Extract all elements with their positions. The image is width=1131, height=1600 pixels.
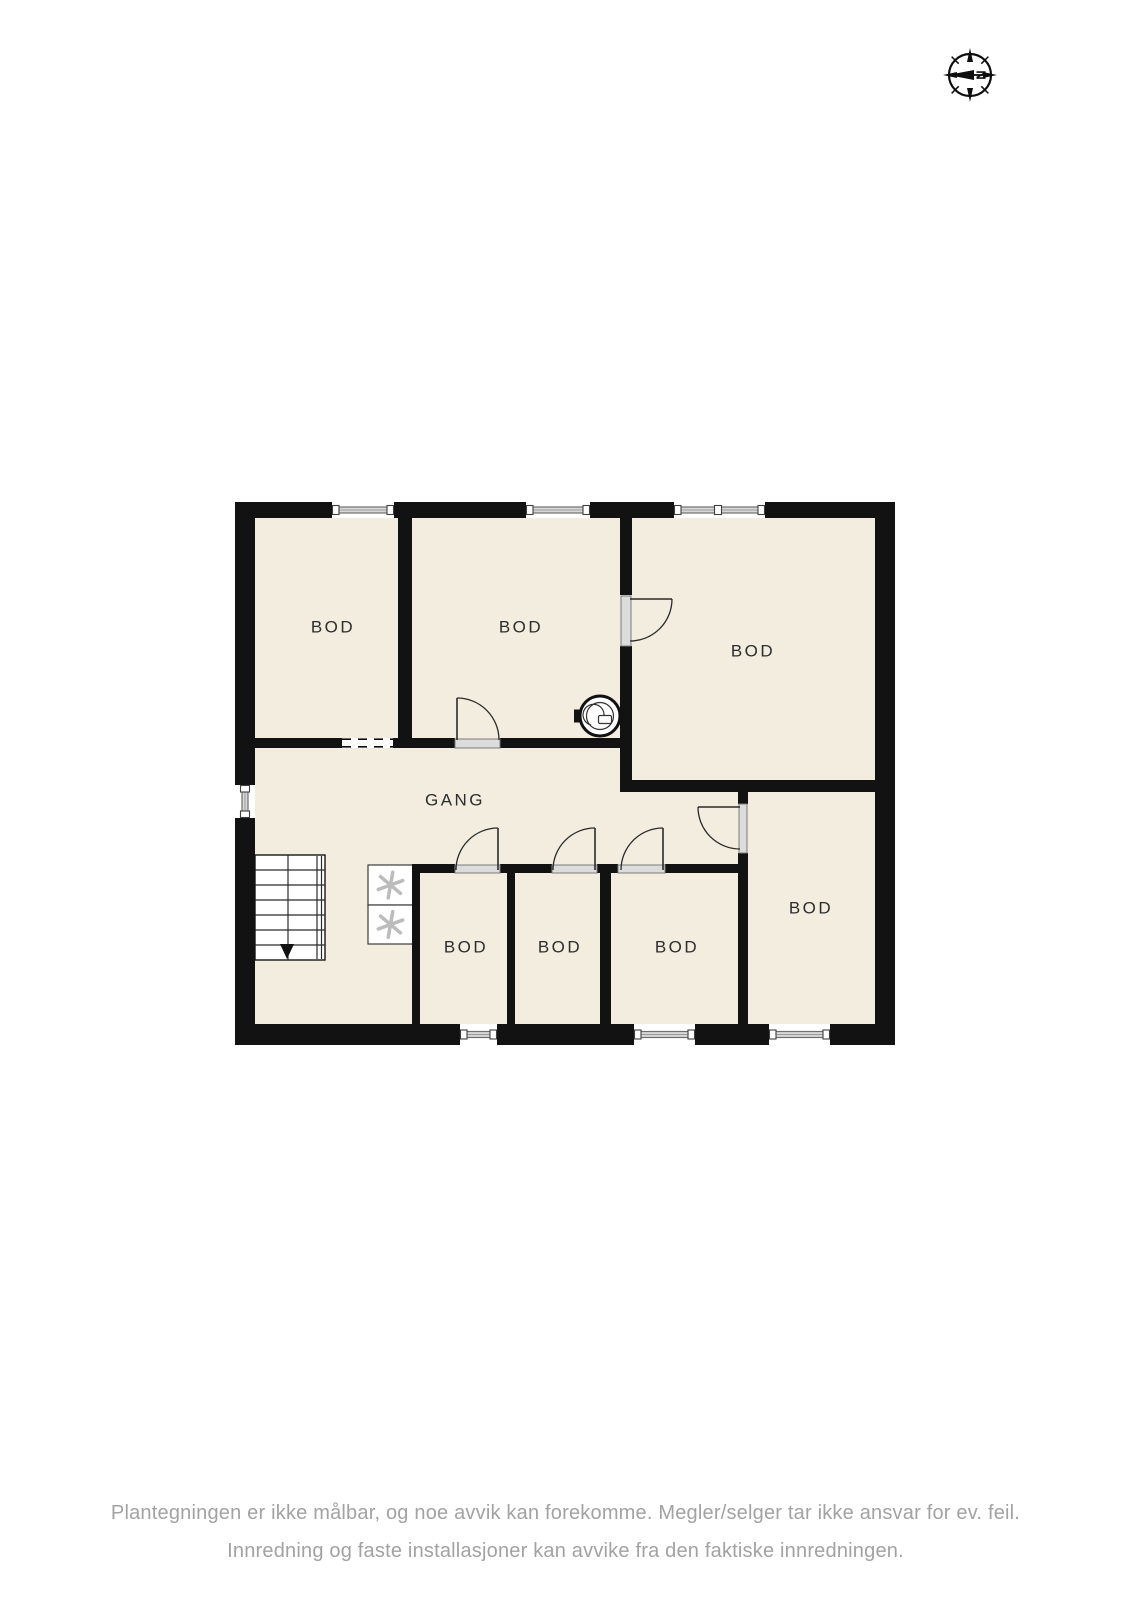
wall [830, 1024, 895, 1045]
wall [255, 738, 342, 748]
wall [398, 518, 412, 738]
wall [235, 502, 255, 785]
wall [500, 738, 620, 748]
wall [600, 873, 611, 1024]
wall [695, 1024, 769, 1045]
window [769, 1024, 830, 1045]
room-label: BOD [538, 938, 582, 957]
floor-plan: BODBODBODGANGBODBODBODBODN [0, 0, 1131, 1600]
room: BOD [538, 938, 582, 957]
compass-icon: N [943, 48, 997, 102]
freezer-icon [368, 905, 413, 944]
staircase [255, 855, 325, 960]
wall [738, 792, 748, 804]
room: BOD [731, 642, 775, 661]
compass-north-label: N [974, 70, 989, 79]
wall [597, 864, 618, 873]
disclaimer-line-1: Plantegningen er ikke målbar, og noe avv… [0, 1494, 1131, 1532]
dashed-opening [342, 738, 393, 748]
room: BOD [444, 938, 488, 957]
wall [497, 1024, 634, 1045]
disclaimer-line-2: Innredning og faste installasjoner kan a… [0, 1532, 1131, 1570]
wall [235, 1024, 460, 1045]
room: GANG [425, 791, 485, 810]
window [674, 502, 765, 518]
wall [875, 502, 895, 1045]
window [235, 785, 255, 818]
room: BOD [311, 618, 355, 637]
freezer-icon [368, 865, 413, 905]
wall [738, 853, 748, 1024]
room: BOD [789, 899, 833, 918]
wall [590, 502, 674, 518]
room-label: BOD [789, 899, 833, 918]
window [634, 1024, 695, 1045]
wall [500, 864, 552, 873]
wall [394, 502, 526, 518]
disclaimer: Plantegningen er ikke målbar, og noe avv… [0, 1494, 1131, 1570]
window [332, 502, 394, 518]
room-label: GANG [425, 791, 485, 810]
wall [507, 873, 515, 1024]
wall [412, 864, 420, 1024]
room-label: BOD [311, 618, 355, 637]
wall [620, 780, 875, 792]
window [460, 1024, 497, 1045]
room: BOD [499, 618, 543, 637]
wall [393, 738, 455, 748]
room-label: BOD [655, 938, 699, 957]
room-label: BOD [444, 938, 488, 957]
room-label: BOD [731, 642, 775, 661]
wall [235, 818, 255, 1045]
wall [665, 864, 738, 873]
compass-needle [948, 70, 974, 80]
page: { "compass": { "label": "N", "cx": 970, … [0, 0, 1131, 1600]
wall [620, 518, 632, 595]
window [526, 502, 590, 518]
room: BOD [655, 938, 699, 957]
room-label: BOD [499, 618, 543, 637]
